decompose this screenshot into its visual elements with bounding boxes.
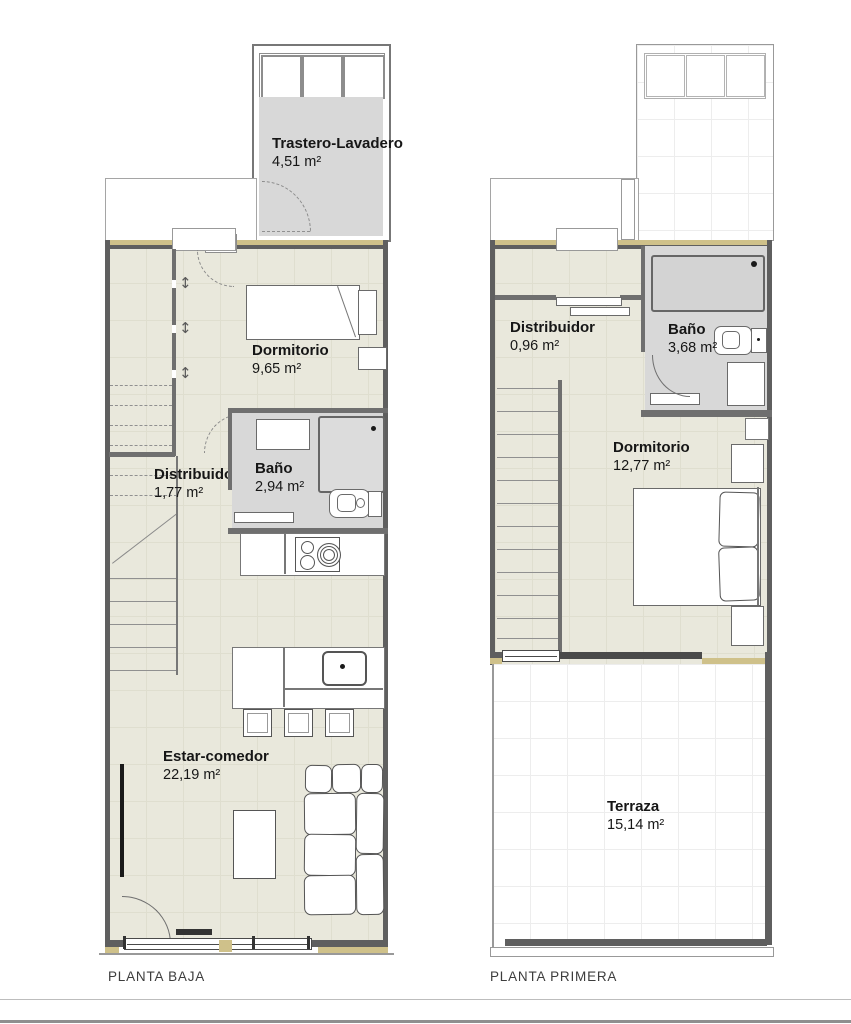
sofa-cushion bbox=[332, 764, 361, 793]
floorplan-sheet: Trastero-Lavadero 4,51 m² ↕ ↕ ↕ bbox=[0, 0, 851, 1024]
washbasin bbox=[256, 419, 310, 450]
burner bbox=[300, 555, 315, 570]
sliding-glass-door bbox=[560, 652, 702, 659]
washbasin bbox=[727, 362, 765, 406]
wall-segment bbox=[765, 652, 772, 945]
partition-gap bbox=[172, 325, 176, 333]
stair-tread bbox=[110, 601, 177, 602]
cistern-dot bbox=[757, 338, 760, 341]
nightstand bbox=[731, 606, 764, 646]
room-name: Trastero-Lavadero bbox=[272, 134, 403, 153]
plan-title: PLANTA BAJA bbox=[108, 969, 205, 984]
stair-tread bbox=[110, 425, 172, 426]
stair-tread bbox=[497, 457, 558, 458]
terrace-edge bbox=[492, 664, 494, 947]
patio-step bbox=[556, 228, 618, 251]
window-pane bbox=[646, 55, 685, 97]
shaft bbox=[745, 418, 769, 440]
sofa-cushion bbox=[304, 834, 357, 877]
room-label-bano: Baño 3,68 m² bbox=[668, 320, 717, 358]
room-label-terraza: Terraza 15,14 m² bbox=[607, 797, 664, 835]
cistern bbox=[368, 491, 382, 517]
room-name: Dormitorio bbox=[252, 341, 329, 360]
room-area: 2,94 m² bbox=[255, 478, 304, 497]
footer-rule-top bbox=[0, 999, 851, 1000]
stair-tread bbox=[110, 405, 172, 406]
stair-tread bbox=[497, 526, 558, 527]
glass-line bbox=[505, 656, 557, 657]
window-pane bbox=[261, 55, 302, 99]
burner bbox=[317, 543, 341, 567]
room-label-dormitorio: Dormitorio 12,77 m² bbox=[613, 438, 690, 476]
window-band bbox=[502, 650, 560, 662]
window-pane bbox=[343, 55, 385, 99]
room-area: 9,65 m² bbox=[252, 360, 329, 379]
sliding-door-leaf bbox=[556, 297, 622, 306]
glass-line bbox=[127, 944, 309, 945]
ledge bbox=[621, 179, 635, 240]
stair-tread bbox=[497, 434, 558, 435]
stair-tread bbox=[110, 385, 172, 386]
pillow bbox=[358, 290, 377, 335]
stool bbox=[284, 709, 313, 737]
room-area: 0,96 m² bbox=[510, 337, 595, 356]
wall-segment bbox=[641, 246, 645, 352]
stair-tread bbox=[110, 578, 177, 579]
footer-rule-bottom bbox=[0, 1020, 851, 1023]
room-name: Distribuidor bbox=[510, 318, 595, 337]
wall-segment bbox=[490, 240, 495, 665]
stair-tread bbox=[110, 445, 172, 446]
room-label-trastero: Trastero-Lavadero 4,51 m² bbox=[272, 134, 403, 172]
room-area: 1,77 m² bbox=[154, 484, 239, 503]
door-leaf bbox=[176, 929, 212, 935]
door-leaf-dashed bbox=[262, 231, 310, 232]
window-jamb bbox=[252, 936, 255, 949]
wall-segment bbox=[767, 240, 772, 665]
toilet-seat bbox=[337, 494, 356, 512]
patio-step bbox=[172, 228, 236, 251]
room-area: 4,51 m² bbox=[272, 153, 403, 172]
counter-divider bbox=[284, 533, 286, 574]
double-arrow-icon: ↕ bbox=[179, 366, 192, 381]
stair-wall bbox=[558, 380, 562, 655]
window-pane bbox=[686, 55, 725, 97]
sofa-cushion bbox=[305, 765, 332, 793]
stool bbox=[243, 709, 272, 737]
partition-gap bbox=[172, 280, 176, 288]
sofa-cushion bbox=[304, 875, 356, 916]
sliding-door-leaf bbox=[570, 307, 630, 316]
insulation-band bbox=[219, 940, 232, 952]
island-divider bbox=[283, 647, 285, 707]
stair-tread bbox=[497, 388, 558, 389]
room-name: Distribuidor bbox=[154, 465, 239, 484]
shower bbox=[651, 255, 765, 312]
stair-tread bbox=[110, 670, 177, 671]
wall-segment bbox=[505, 939, 767, 946]
partition-gap bbox=[172, 370, 176, 378]
room-label-dormitorio: Dormitorio 9,65 m² bbox=[252, 341, 329, 379]
closet-wall bbox=[109, 452, 175, 457]
stool bbox=[325, 709, 354, 737]
room-name: Dormitorio bbox=[613, 438, 690, 457]
window-jamb bbox=[123, 936, 126, 949]
stair-tread bbox=[497, 480, 558, 481]
door-leaf bbox=[234, 512, 294, 523]
sofa-cushion bbox=[304, 793, 356, 836]
room-area: 15,14 m² bbox=[607, 816, 664, 835]
stair-tread bbox=[497, 638, 558, 639]
bed bbox=[246, 285, 360, 340]
toilet-seat bbox=[722, 331, 740, 349]
sofa-cushion bbox=[356, 793, 385, 854]
shower-drain bbox=[371, 426, 376, 431]
sofa-cushion bbox=[361, 764, 383, 793]
room-area: 3,68 m² bbox=[668, 339, 717, 358]
stair-tread bbox=[497, 572, 558, 573]
wall-segment bbox=[105, 245, 388, 249]
room-name: Baño bbox=[668, 320, 717, 339]
room-name: Estar-comedor bbox=[163, 747, 269, 766]
room-label-estar: Estar-comedor 22,19 m² bbox=[163, 747, 269, 785]
window-pane bbox=[726, 55, 765, 97]
plan-title: PLANTA PRIMERA bbox=[490, 969, 617, 984]
double-arrow-icon: ↕ bbox=[179, 276, 192, 291]
sofa-cushion bbox=[356, 854, 385, 915]
wall-segment bbox=[105, 240, 110, 953]
stair-tread bbox=[110, 624, 177, 625]
stair-tread bbox=[497, 503, 558, 504]
room-label-distribuidor: Distribuidor 1,77 m² bbox=[154, 465, 239, 503]
stair-tread bbox=[497, 595, 558, 596]
nightstand bbox=[358, 347, 387, 370]
tv-unit bbox=[120, 764, 124, 877]
burner bbox=[301, 541, 314, 554]
room-name: Terraza bbox=[607, 797, 664, 816]
pillow bbox=[718, 491, 759, 547]
wall-segment bbox=[228, 408, 388, 413]
headboard bbox=[757, 487, 759, 605]
terrace-rim bbox=[490, 947, 774, 957]
room-name: Baño bbox=[255, 459, 304, 478]
window-pane bbox=[302, 55, 343, 99]
room-label-bano: Baño 2,94 m² bbox=[255, 459, 304, 497]
wall-segment bbox=[228, 413, 232, 490]
stair-tread bbox=[497, 618, 558, 619]
wall-segment bbox=[641, 410, 772, 417]
nightstand bbox=[731, 444, 764, 483]
stair-tread bbox=[110, 647, 177, 648]
window-jamb bbox=[307, 936, 310, 949]
window-band bbox=[124, 938, 312, 950]
sink bbox=[322, 651, 367, 686]
plinth-line bbox=[99, 953, 394, 955]
room-area: 12,77 m² bbox=[613, 457, 690, 476]
stair-tread bbox=[497, 549, 558, 550]
stair-tread bbox=[497, 411, 558, 412]
toilet-flush bbox=[356, 498, 365, 508]
coffee-table bbox=[233, 810, 276, 879]
room-area: 22,19 m² bbox=[163, 766, 269, 785]
door-leaf bbox=[650, 393, 700, 405]
sink-drain bbox=[340, 664, 345, 669]
island-divider bbox=[283, 688, 383, 690]
pillow bbox=[718, 546, 760, 601]
shower-drain bbox=[751, 261, 757, 267]
double-arrow-icon: ↕ bbox=[179, 321, 192, 336]
room-label-distribuidor: Distribuidor 0,96 m² bbox=[510, 318, 595, 356]
